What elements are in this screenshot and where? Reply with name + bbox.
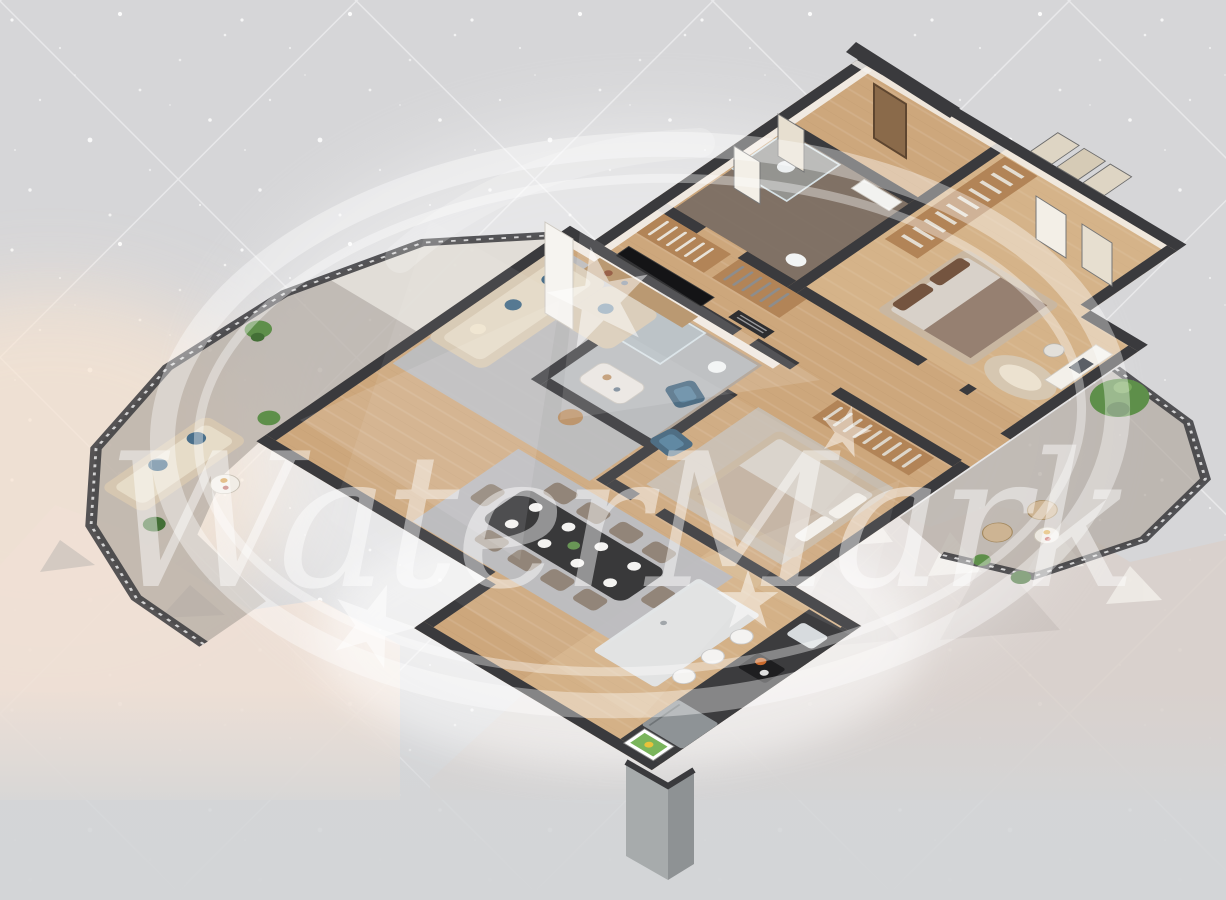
watermark-text: WaterMark — [107, 413, 1134, 630]
floor-plan-scene: WaterMark — [0, 0, 1226, 900]
render-canvas: WaterMark — [0, 0, 1226, 900]
